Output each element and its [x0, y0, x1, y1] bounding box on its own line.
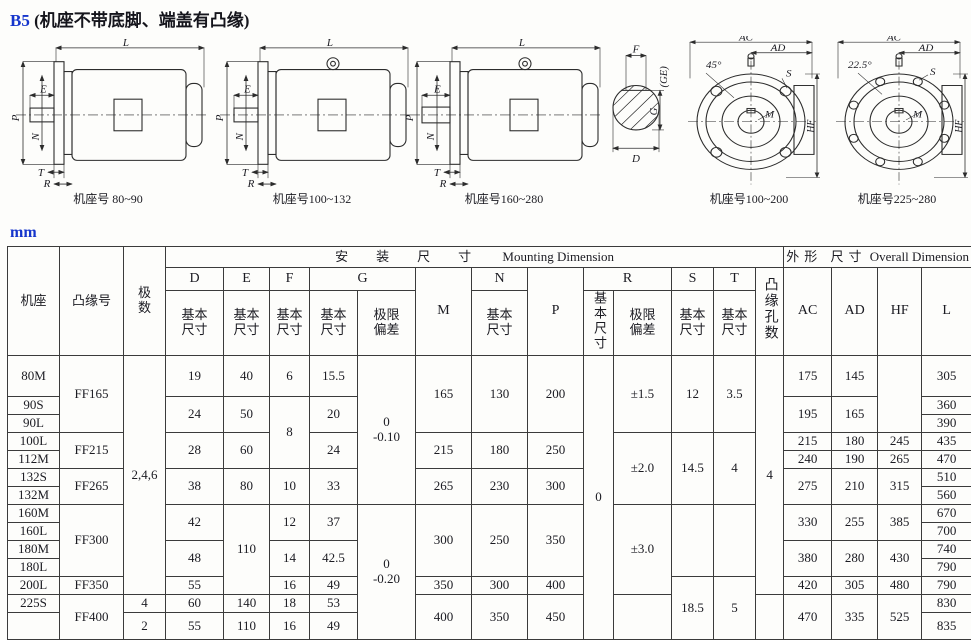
header-HF: HF	[878, 268, 922, 356]
cell-M: 300	[416, 505, 472, 577]
cell-L: 790	[922, 577, 971, 595]
figure-flange-front-100-200: AC AD 45° S M HF 机座号100~200	[676, 36, 822, 207]
subheader-basic-vertical-text: 基本尺寸	[591, 291, 606, 351]
motor-side-drawing: L E P N T R	[404, 38, 604, 188]
subheader-basic-vertical: 基本尺寸	[584, 291, 614, 356]
dim-E: E	[243, 83, 251, 95]
header-G: G	[310, 268, 416, 291]
cell-N: 350	[472, 595, 528, 640]
dim-S: S	[786, 69, 792, 79]
figure-caption: 机座号160~280	[404, 190, 604, 207]
cell-G: 24	[310, 433, 358, 469]
cell-frame: 112M	[8, 451, 60, 469]
cell-N: 130	[472, 356, 528, 433]
cell-E: 140	[224, 595, 270, 613]
dim-AC: AC	[738, 36, 754, 43]
header-mounting-en: Mounting Dimension	[502, 249, 614, 264]
cell-D: 55	[166, 613, 224, 640]
header-frame: 机座	[8, 247, 60, 356]
cell-AD: 210	[832, 469, 878, 505]
cell-G: 37	[310, 505, 358, 541]
dim-P: P	[404, 114, 416, 122]
cell-AD: 280	[832, 541, 878, 577]
cell-D: 42	[166, 505, 224, 541]
header-R: R	[584, 268, 672, 291]
cell-frame: 100L	[8, 433, 60, 451]
header-flange-holes: 凸缘孔数	[756, 268, 784, 356]
cell-S: 18.5	[672, 577, 714, 640]
cell-F: 14	[270, 541, 310, 577]
cell-AC: 275	[784, 469, 832, 505]
figure-caption: 机座号100~132	[212, 190, 412, 207]
dim-L: L	[518, 38, 525, 49]
cell-M: 400	[416, 595, 472, 640]
cell-AC: 330	[784, 505, 832, 541]
header-overall-cn: 外形 尺寸	[786, 249, 866, 264]
cell-F: 16	[270, 613, 310, 640]
cell-L: 830	[922, 595, 971, 613]
cell-AC: 380	[784, 541, 832, 577]
subheader-basic: 基本 尺寸	[224, 291, 270, 356]
cell-T: 4	[714, 433, 756, 505]
cell-R-deviation: ±1.5	[614, 356, 672, 433]
cell-G: 42.5	[310, 541, 358, 577]
cell-P: 400	[528, 577, 584, 595]
cell-poles: 2	[124, 613, 166, 640]
cell-HF: 385	[878, 505, 922, 541]
cell-L: 790	[922, 559, 971, 577]
cell-D: 24	[166, 397, 224, 433]
cell-G-deviation: 0 -0.10	[358, 356, 416, 505]
cell-G: 33	[310, 469, 358, 505]
header-mounting-group: 安装尺寸 Mounting Dimension	[166, 247, 784, 268]
subheader-basic: 基本 尺寸	[472, 291, 528, 356]
header-poles: 极 数	[124, 247, 166, 356]
cell-HF: 245	[878, 433, 922, 451]
unit-label: mm	[10, 224, 37, 242]
dim-S: S	[930, 67, 936, 77]
header-AC: AC	[784, 268, 832, 356]
dim-P: P	[214, 114, 226, 122]
cell-flange: FF265	[60, 469, 124, 505]
cell-poles: 4	[124, 595, 166, 613]
cell-N: 250	[472, 505, 528, 577]
cell-F: 10	[270, 469, 310, 505]
dim-N: N	[425, 132, 437, 141]
subheader-dev: 极限 偏差	[358, 291, 416, 356]
figure-caption: 机座号 80~90	[8, 190, 208, 207]
motor-side-drawing: L E P N T R	[212, 38, 412, 188]
cell-flange: FF350	[60, 577, 124, 595]
dim-L: L	[326, 38, 333, 49]
cell-M: 350	[416, 577, 472, 595]
cell-AD: 255	[832, 505, 878, 541]
cell-AD: 145	[832, 356, 878, 397]
cell-D: 28	[166, 433, 224, 469]
cell-F: 12	[270, 505, 310, 541]
cell-L: 835	[922, 613, 971, 640]
cell-flange: FF215	[60, 433, 124, 469]
header-F: F	[270, 268, 310, 291]
figure-shaft-section: F (GE) G D	[600, 44, 672, 184]
cell-HF: 480	[878, 577, 922, 595]
cell-HF: 430	[878, 541, 922, 577]
cell-P: 250	[528, 433, 584, 469]
cell-HF-empty	[878, 356, 922, 433]
flange-front-drawing: AC AD 45° S M HF	[676, 36, 822, 188]
cell-flange: FF165	[60, 356, 124, 433]
cell-F: 6	[270, 356, 310, 397]
cell-AD: 190	[832, 451, 878, 469]
cell-T-empty	[714, 505, 756, 577]
cell-F: 18	[270, 595, 310, 613]
figure-caption: 机座号100~200	[676, 190, 822, 207]
figure-caption: 机座号225~280	[824, 190, 970, 207]
flange-front-drawing: AC AD 22.5° S M HF	[824, 36, 970, 188]
figure-motor-side-80-90: L E P N T R 机座号 80~90	[8, 38, 208, 207]
cell-frame: 180M	[8, 541, 60, 559]
figure-flange-front-225-280: AC AD 22.5° S M HF 机座号225~28	[824, 36, 970, 207]
cell-AD: 165	[832, 397, 878, 433]
cell-R-deviation-empty	[614, 595, 672, 640]
cell-R-basic: 0	[584, 356, 614, 640]
dim-R: R	[439, 178, 447, 188]
header-M: M	[416, 268, 472, 356]
figure-motor-side-100-132: L E P N T R 机座号100~132	[212, 38, 412, 207]
cell-frame: 132S	[8, 469, 60, 487]
drawings-strip: L E P N T R 机座号 80~90	[0, 36, 971, 236]
subheader-basic: 基本 尺寸	[270, 291, 310, 356]
cell-holes-empty	[756, 595, 784, 640]
cell-S-empty	[672, 505, 714, 577]
cell-S: 12	[672, 356, 714, 433]
cell-E: 60	[224, 433, 270, 469]
header-flange: 凸缘号	[60, 247, 124, 356]
header-mounting-cn: 安装尺寸	[335, 249, 499, 264]
cell-E: 50	[224, 397, 270, 433]
shaft-section-drawing: F (GE) G D	[600, 44, 672, 184]
cell-AC: 420	[784, 577, 832, 595]
header-D: D	[166, 268, 224, 291]
dimension-table: 机座 凸缘号 极 数 安装尺寸 Mounting Dimension 外形 尺寸…	[7, 246, 971, 640]
cell-AC: 470	[784, 595, 832, 640]
cell-G-deviation: 0 -0.20	[358, 505, 416, 640]
title-code: B5	[10, 11, 30, 30]
cell-F: 8	[270, 397, 310, 469]
cell-P: 300	[528, 469, 584, 505]
cell-HF: 525	[878, 595, 922, 640]
cell-AC: 215	[784, 433, 832, 451]
cell-frame: 160M	[8, 505, 60, 523]
cell-poles: 2,4,6	[124, 356, 166, 595]
cell-frame: 80M	[8, 356, 60, 397]
cell-L: 670	[922, 505, 971, 523]
dim-angle: 45°	[706, 60, 721, 70]
cell-L: 360	[922, 397, 971, 415]
cell-frame: 132M	[8, 487, 60, 505]
cell-M: 215	[416, 433, 472, 469]
spec-sheet-page: { "title": {"code": "B5", "rest": " (机座不…	[0, 0, 971, 602]
cell-L: 740	[922, 541, 971, 559]
cell-G: 53	[310, 595, 358, 613]
cell-L: 435	[922, 433, 971, 451]
cell-frame: 180L	[8, 559, 60, 577]
title-text: (机座不带底脚、端盖有凸缘)	[30, 11, 250, 30]
cell-frame: 90S	[8, 397, 60, 415]
cell-M: 265	[416, 469, 472, 505]
dim-F: F	[632, 44, 640, 56]
cell-F: 16	[270, 577, 310, 595]
header-E: E	[224, 268, 270, 291]
cell-L: 390	[922, 415, 971, 433]
cell-R-deviation: ±2.0	[614, 433, 672, 505]
subheader-dev: 极限 偏差	[614, 291, 672, 356]
header-overall-en: Overall Dimension	[870, 249, 969, 264]
cell-AD: 180	[832, 433, 878, 451]
header-L: L	[922, 268, 971, 356]
dim-R: R	[43, 178, 51, 188]
cell-D: 60	[166, 595, 224, 613]
cell-E: 110	[224, 505, 270, 595]
header-overall-group: 外形 尺寸 Overall Dimension	[784, 247, 971, 268]
cell-R-deviation: ±3.0	[614, 505, 672, 595]
subheader-basic: 基本 尺寸	[310, 291, 358, 356]
cell-AD: 305	[832, 577, 878, 595]
cell-L: 305	[922, 356, 971, 397]
dim-M: M	[912, 110, 924, 120]
figure-motor-side-160-280: L E P N T R 机座号160~280	[404, 38, 604, 207]
dim-angle: 22.5°	[848, 60, 872, 70]
header-P: P	[528, 268, 584, 356]
cell-HF: 265	[878, 451, 922, 469]
cell-frame: 160L	[8, 523, 60, 541]
dim-L: L	[122, 38, 129, 49]
header-N: N	[472, 268, 528, 291]
dim-P: P	[10, 114, 22, 122]
cell-AC: 240	[784, 451, 832, 469]
dim-N: N	[30, 132, 42, 141]
cell-L: 510	[922, 469, 971, 487]
cell-L: 470	[922, 451, 971, 469]
cell-HF: 315	[878, 469, 922, 505]
cell-D: 19	[166, 356, 224, 397]
cell-P: 450	[528, 595, 584, 640]
dim-GE: (GE)	[658, 66, 670, 88]
cell-G: 49	[310, 577, 358, 595]
cell-T: 3.5	[714, 356, 756, 433]
cell-frame: 90L	[8, 415, 60, 433]
dim-D: D	[631, 153, 640, 165]
cell-flange: FF400	[60, 595, 124, 640]
cell-P: 200	[528, 356, 584, 433]
dim-AD: AD	[770, 44, 786, 54]
header-S: S	[672, 268, 714, 291]
cell-N: 180	[472, 433, 528, 469]
page-title: B5 (机座不带底脚、端盖有凸缘)	[10, 6, 249, 31]
cell-P: 350	[528, 505, 584, 577]
dim-AC: AC	[886, 36, 902, 43]
cell-N: 300	[472, 577, 528, 595]
dim-E: E	[39, 83, 47, 95]
cell-AD: 335	[832, 595, 878, 640]
dim-M: M	[764, 110, 776, 120]
header-T: T	[714, 268, 756, 291]
dim-AD: AD	[918, 44, 934, 54]
cell-D: 48	[166, 541, 224, 577]
cell-D: 38	[166, 469, 224, 505]
cell-AC: 195	[784, 397, 832, 433]
dim-N: N	[234, 132, 246, 141]
cell-D: 55	[166, 577, 224, 595]
cell-G: 15.5	[310, 356, 358, 397]
cell-M: 165	[416, 356, 472, 433]
dim-HF: HF	[806, 119, 818, 134]
cell-G: 20	[310, 397, 358, 433]
cell-frame: 200L	[8, 577, 60, 595]
cell-holes: 4	[756, 356, 784, 595]
header-flange-holes-text: 凸缘孔数	[762, 277, 778, 341]
cell-G: 49	[310, 613, 358, 640]
cell-T: 5	[714, 577, 756, 640]
cell-S: 14.5	[672, 433, 714, 505]
cell-AC: 175	[784, 356, 832, 397]
cell-frame: 225S	[8, 595, 60, 613]
cell-L: 700	[922, 523, 971, 541]
dim-R: R	[247, 178, 255, 188]
cell-E: 80	[224, 469, 270, 505]
cell-flange: FF300	[60, 505, 124, 577]
subheader-basic: 基本 尺寸	[166, 291, 224, 356]
header-AD: AD	[832, 268, 878, 356]
dim-G: G	[648, 108, 660, 116]
subheader-basic: 基本 尺寸	[672, 291, 714, 356]
cell-E: 110	[224, 613, 270, 640]
subheader-basic: 基本 尺寸	[714, 291, 756, 356]
dim-HF: HF	[954, 119, 966, 134]
cell-L: 560	[922, 487, 971, 505]
cell-E: 40	[224, 356, 270, 397]
cell-frame	[8, 613, 60, 640]
motor-side-drawing: L E P N T R	[8, 38, 208, 188]
cell-N: 230	[472, 469, 528, 505]
